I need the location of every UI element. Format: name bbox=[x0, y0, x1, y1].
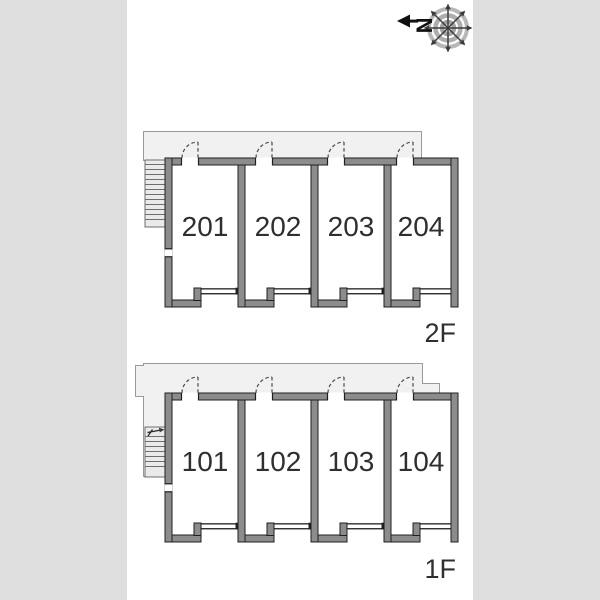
floor-label-2f: 2F bbox=[424, 318, 456, 348]
partition-wall bbox=[238, 165, 245, 307]
room-number-103: 103 bbox=[328, 446, 375, 477]
floor-plan-2f: 201 202 203 204 2F bbox=[144, 132, 459, 349]
floor-label-1f: 1F bbox=[424, 554, 456, 584]
room-number-101: 101 bbox=[182, 446, 229, 477]
room-number-104: 104 bbox=[398, 446, 445, 477]
unit-bay bbox=[384, 288, 458, 307]
partition-wall bbox=[238, 400, 245, 542]
north-label: N bbox=[412, 18, 437, 34]
room-number-202: 202 bbox=[255, 211, 302, 242]
unit-bay bbox=[311, 523, 385, 542]
staircase-1f-icon bbox=[145, 427, 166, 477]
room-number-201: 201 bbox=[182, 211, 229, 242]
window-left-wall-2f bbox=[165, 248, 173, 257]
staircase-2f-icon bbox=[145, 160, 166, 227]
partition-wall bbox=[384, 400, 391, 542]
floor-plan-1f: 101 102 103 104 1F bbox=[136, 364, 459, 585]
north-arrow-icon: N bbox=[397, 15, 437, 34]
room-number-204: 204 bbox=[398, 211, 445, 242]
unit-bay bbox=[311, 288, 385, 307]
partition-wall bbox=[384, 165, 391, 307]
room-number-102: 102 bbox=[255, 446, 302, 477]
partition-wall bbox=[311, 165, 318, 307]
floorplan-drawing: N bbox=[0, 0, 600, 600]
corridor-2f bbox=[144, 132, 422, 161]
room-number-203: 203 bbox=[328, 211, 375, 242]
floorplan-page: N bbox=[0, 0, 600, 600]
unit-bay bbox=[384, 523, 458, 542]
unit-bay bbox=[238, 523, 312, 542]
compass-icon: N bbox=[397, 4, 473, 53]
unit-bay bbox=[165, 288, 239, 307]
unit-bay bbox=[165, 523, 239, 542]
unit-bay bbox=[238, 288, 312, 307]
window-left-wall-1f bbox=[165, 483, 173, 492]
partition-wall bbox=[311, 400, 318, 542]
